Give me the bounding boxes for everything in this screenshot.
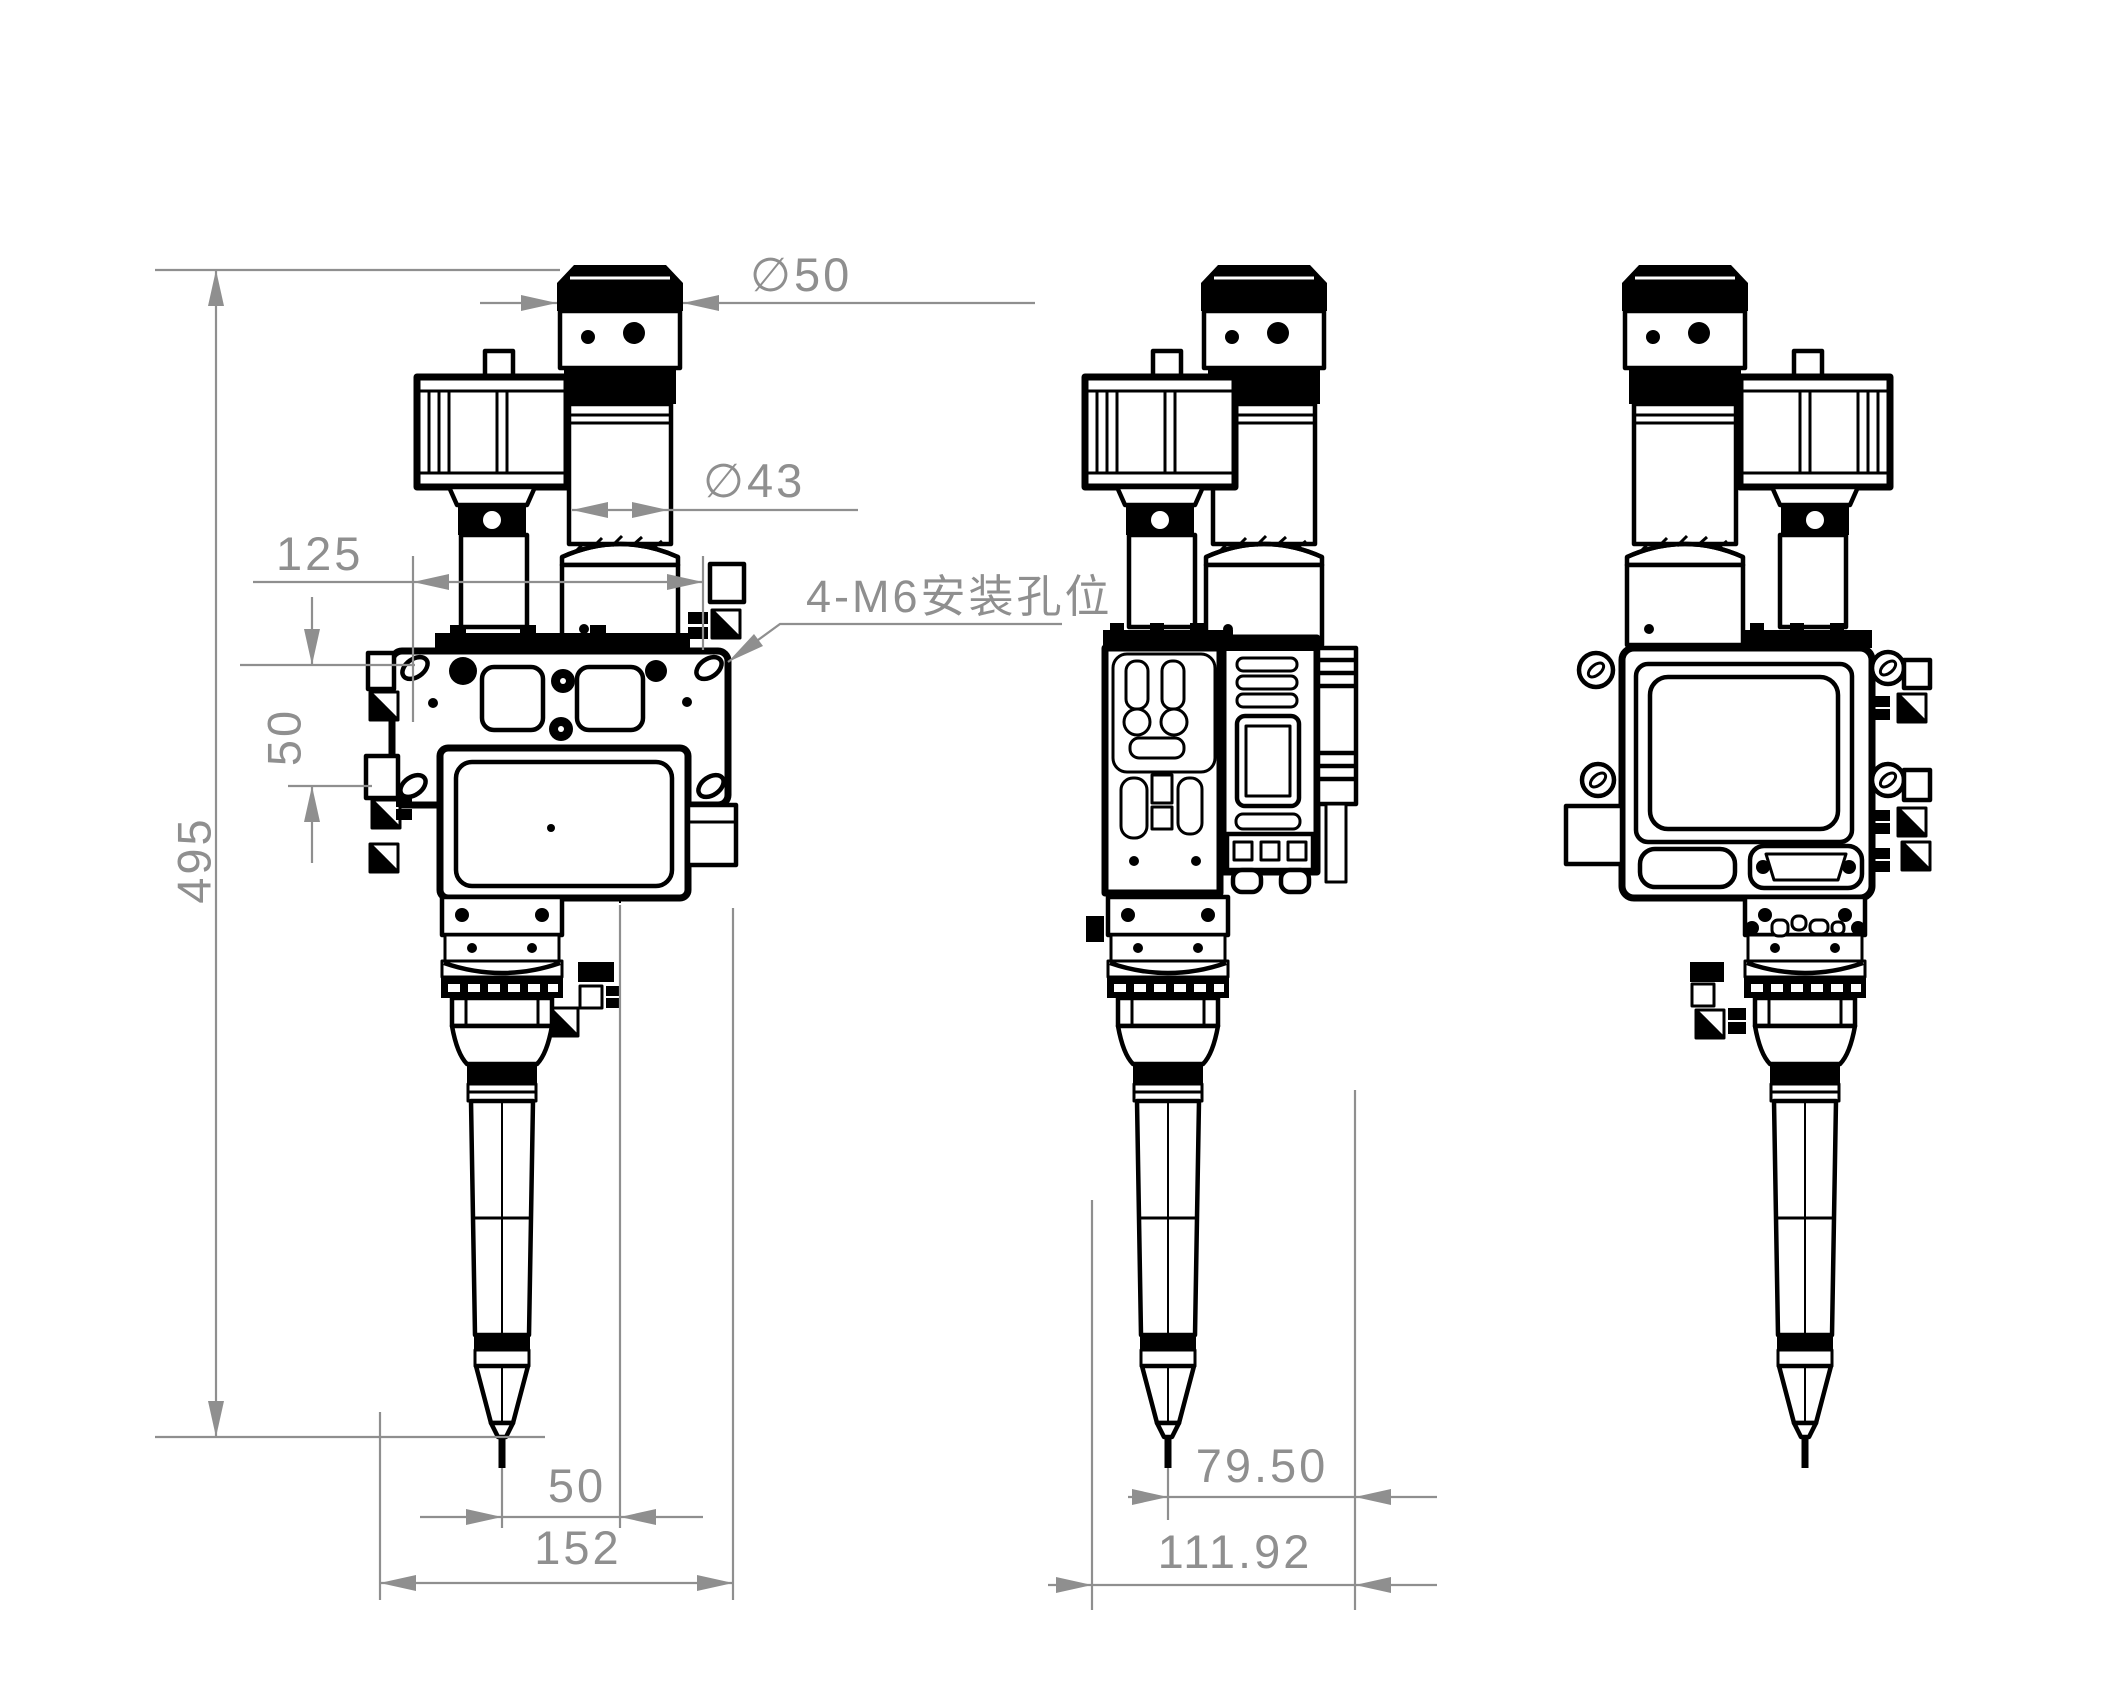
nozzle xyxy=(441,978,563,1468)
dim-label: 152 xyxy=(534,1521,621,1574)
dsub-connector xyxy=(1750,846,1862,888)
dim-label: 50 xyxy=(258,708,311,766)
three-view-technical-drawing: ∅50 ∅43 125 50 495 xyxy=(0,0,2111,1706)
gas-fitting xyxy=(1690,962,1746,1038)
focus-module xyxy=(442,897,562,977)
drawing-canvas: ∅50 ∅43 125 50 495 xyxy=(0,0,2111,1706)
dim-label: ∅50 xyxy=(750,248,852,301)
body-front xyxy=(366,625,736,898)
view-side xyxy=(1085,265,1356,1468)
dim-label: 495 xyxy=(168,816,221,903)
camera-module xyxy=(557,265,683,645)
wire-feeder xyxy=(1740,351,1890,627)
body-rear xyxy=(1566,623,1930,898)
nozzle xyxy=(1744,978,1866,1468)
dim-label: ∅43 xyxy=(703,454,805,507)
body-side xyxy=(1086,623,1356,942)
view-rear xyxy=(1566,265,1930,1468)
focus-module xyxy=(1108,897,1228,977)
dimensions-side: 79.50 111.92 xyxy=(1048,1090,1437,1610)
dim-label: 50 xyxy=(548,1459,606,1512)
leader-m6-note: 4-M6安装孔位 xyxy=(728,571,1113,662)
m6-note-label: 4-M6安装孔位 xyxy=(806,571,1113,622)
view-front xyxy=(366,265,744,1468)
focus-module xyxy=(1745,897,1865,977)
dim-label: 125 xyxy=(276,527,363,580)
dim-overall-depth: 111.92 xyxy=(1048,1525,1437,1593)
nozzle xyxy=(1107,978,1229,1468)
dim-label: 111.92 xyxy=(1158,1525,1313,1578)
dim-label: 79.50 xyxy=(1196,1439,1329,1492)
camera-module xyxy=(1622,265,1748,645)
wire-guide-clamp xyxy=(688,564,744,639)
